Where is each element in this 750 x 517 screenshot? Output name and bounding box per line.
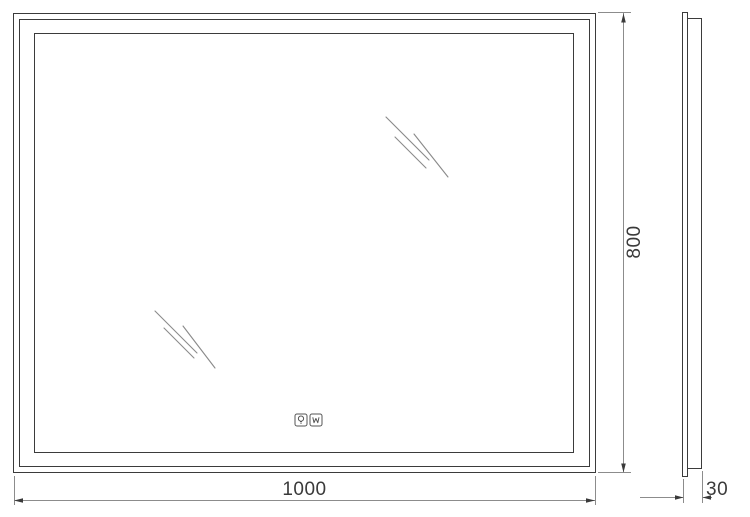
mirror-technical-drawing: 1000 800 30 <box>0 0 750 517</box>
shine-marks-bottom-left <box>155 311 215 368</box>
shine-marks-top-right <box>386 117 448 177</box>
touch-controls <box>295 414 322 426</box>
height-dimension-label: 800 <box>625 222 645 262</box>
dimension-arrowheads <box>14 14 711 503</box>
depth-dimension-label: 30 <box>706 479 728 501</box>
anti-fog-icon <box>310 414 322 426</box>
width-dimension-label: 1000 <box>13 479 596 501</box>
light-bulb-icon <box>295 414 307 426</box>
